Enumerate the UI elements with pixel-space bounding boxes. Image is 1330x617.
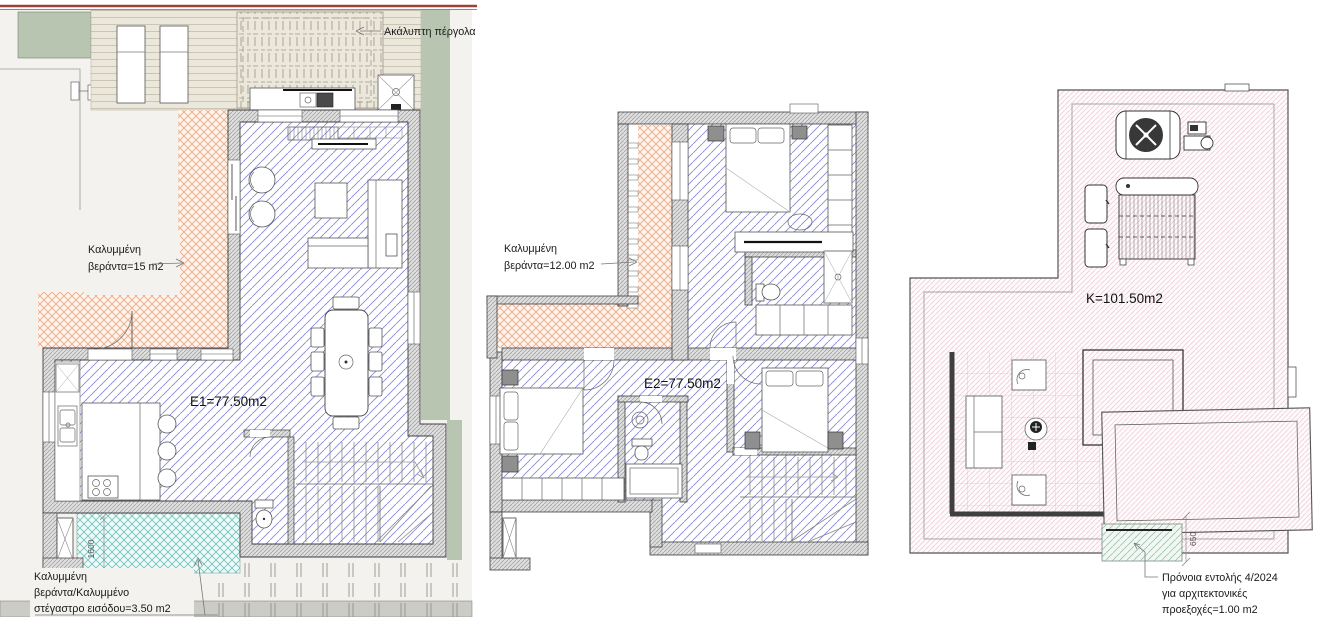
area-label-e1: E1=77.50m2 (190, 394, 267, 409)
stove (88, 476, 118, 498)
planter-box (1012, 475, 1046, 505)
entrance-line2: βεράντα/Καλυμμένο (34, 587, 129, 599)
sun-lounger (117, 26, 145, 103)
boiler-cylinder (1085, 185, 1109, 223)
veranda-15-line1: Καλυμμένη (88, 244, 141, 256)
floor-plans-sheet: Ακάλυπτη πέργολα Καλυμμένη βεράντα=15 m2… (0, 0, 1330, 617)
nightstand (792, 126, 807, 139)
bed-second (500, 388, 583, 454)
nightstand (828, 432, 843, 449)
wardrobe (828, 125, 852, 247)
pergola-label-text: Ακάλυπτη πέργολα (384, 26, 476, 38)
garden-strip (421, 10, 450, 420)
closet-row (502, 478, 624, 500)
provision-line1: Πρόνοια εντολής 4/2024 (1162, 572, 1278, 584)
provision-line3: προεξοχές=1.00 m2 (1162, 604, 1258, 616)
veranda-railing-ticks (627, 143, 638, 308)
provision-line2: για αρχιτεκτονικές (1162, 588, 1247, 600)
balcony-column (503, 518, 516, 558)
veranda-12-line1: Καλυμμένη (504, 243, 557, 255)
armchair (249, 201, 275, 227)
kitchen-counter-sink (55, 362, 80, 501)
first-floor-plan: Καλυμμένη βεράντα=12.00 m2 E2=77.50m2 (487, 104, 868, 570)
entrance-porch (77, 513, 240, 573)
heat-pump-icon (1116, 111, 1180, 159)
veranda-15-label: Καλυμμένη βεράντα=15 m2 (84, 233, 184, 295)
garden-strip (447, 420, 462, 560)
veranda-15-line2: βεράντα=15 m2 (88, 261, 163, 273)
roof-vent (1225, 84, 1249, 91)
veranda-12-line2: βεράντα=12.00 m2 (504, 260, 594, 272)
toilet (756, 284, 780, 301)
closet-row (756, 305, 852, 335)
grass-pavers (218, 577, 244, 617)
area-label-k: K=101.50m2 (1086, 291, 1163, 306)
covered-veranda-15 (38, 292, 178, 350)
outdoor-kitchen (250, 88, 355, 110)
terrace-sofa (966, 396, 1002, 468)
boiler-cylinder (1085, 229, 1109, 267)
armchair (249, 167, 275, 193)
nightstand (502, 456, 518, 472)
floor-plans-canvas: Ακάλυπτη πέργολα Καλυμμένη βεράντα=15 m2… (0, 0, 1330, 617)
sliding-door-opening (228, 160, 240, 234)
roof-plan: 650 K=101.50m2 Πρόνοια εντολής 4/2024 γι… (910, 84, 1312, 616)
secondary-roof (1102, 408, 1313, 534)
dim-1600-text: 1600 (86, 539, 96, 558)
tv-console (312, 139, 376, 149)
nightstand (745, 432, 760, 449)
coffee-table (315, 183, 347, 218)
sun-lounger (160, 26, 188, 103)
bed-master (726, 124, 790, 212)
bed-third (762, 368, 828, 452)
ground-floor-plan: Ακάλυπτη πέργολα Καλυμμένη βεράντα=15 m2… (0, 6, 477, 617)
entrance-line3: στέγαστρο εισόδου=3.50 m2 (34, 603, 171, 615)
veranda-12-label: Καλυμμένη βεράντα=12.00 m2 (504, 243, 637, 272)
nightstand (502, 370, 518, 385)
outdoor-shower-tray (378, 75, 414, 111)
bathroom-shower (824, 251, 852, 303)
grass-pavers (240, 557, 472, 617)
entrance-line1: Καλυμμένη (34, 571, 87, 583)
overhang-provision-patch (1102, 524, 1182, 561)
solar-collector (1116, 178, 1198, 265)
nightstand (708, 126, 724, 141)
planter-box (1012, 360, 1046, 390)
area-label-e2: E2=77.50m2 (644, 376, 721, 391)
dim-650-text: 650 (1188, 532, 1198, 546)
covered-veranda-12 (487, 302, 672, 348)
planting-area (18, 12, 91, 58)
radiator (288, 127, 338, 140)
wc-toilet (255, 500, 273, 528)
roof-edge-detail (1288, 367, 1296, 397)
